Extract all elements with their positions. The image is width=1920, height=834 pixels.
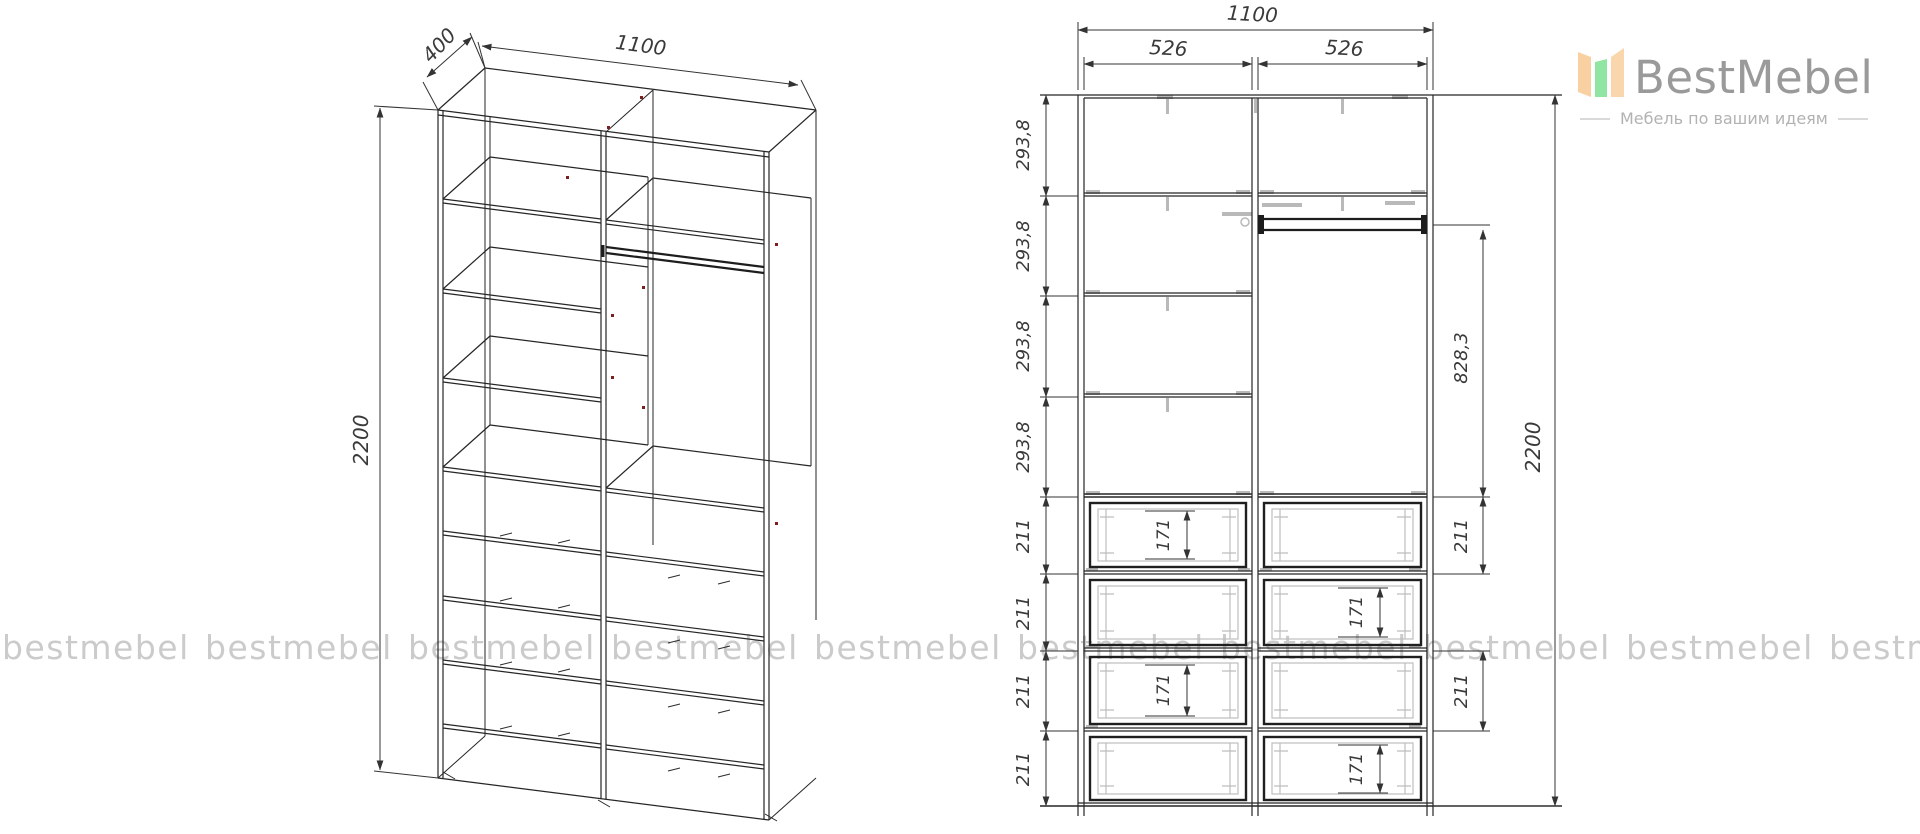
hanging-space-label: 828,3 [1451, 332, 1472, 384]
right-drawer-height-label: 211 [1451, 519, 1472, 553]
drawer-front-label: 171 [1154, 674, 1174, 706]
section-height-label: 293,8 [1013, 220, 1034, 272]
drawer-front [1264, 737, 1421, 800]
iso-hanging-rod [603, 245, 764, 273]
front-gray-fittings [1086, 95, 1425, 728]
section-height-label: 293,8 [1013, 421, 1034, 473]
drawing-canvas: bestmebel bestmebel bestmebel bestmebel … [0, 0, 1920, 834]
drawer-front-label: 171 [1154, 519, 1174, 551]
right-drawer-height-label: 211 [1451, 674, 1472, 708]
iso-dimensions [374, 33, 816, 778]
section-height-label: 293,8 [1013, 119, 1034, 171]
front-hanging-rod [1258, 215, 1427, 234]
brand-logo-icon [1578, 38, 1624, 100]
front-view: 1100 526 526 293,8 293,8 293,8 293,8 211… [1013, 1, 1562, 816]
total-width-label: 1100 [1226, 1, 1278, 28]
front-dimensions [1040, 22, 1562, 806]
brand-logo[interactable]: BestMebel Мебель по вашим идеям [1578, 38, 1890, 128]
drawer-height-label: 211 [1013, 674, 1034, 708]
drawer-front [1264, 580, 1421, 645]
drawer-front-label: 171 [1347, 753, 1367, 785]
section-height-label: 293,8 [1013, 320, 1034, 372]
drawer-height-label: 211 [1013, 519, 1034, 553]
drawer-front-label: 171 [1347, 596, 1367, 628]
right-column-width-label: 526 [1325, 35, 1364, 61]
tagline-rule-right [1838, 118, 1868, 120]
drawer-front [1090, 580, 1246, 645]
iso-view: 2200 1100 400 [349, 23, 816, 821]
iso-height-label: 2200 [349, 415, 373, 466]
drawer-height-label: 211 [1013, 596, 1034, 630]
brand-name: BestMebel [1634, 55, 1873, 100]
left-column-width-label: 526 [1149, 35, 1188, 61]
iso-cabinet-lines [438, 68, 816, 821]
drawer-front [1264, 657, 1421, 724]
drawer-height-label: 211 [1013, 752, 1034, 786]
drawer-front [1090, 737, 1246, 800]
iso-drawer-marks [500, 533, 730, 777]
brand-tagline: Мебель по вашим идеям [1620, 109, 1828, 128]
iso-width-label: 1100 [614, 30, 668, 60]
drawer-front [1264, 503, 1421, 567]
iso-depth-label: 400 [417, 23, 461, 67]
iso-red-markers [566, 96, 778, 525]
total-height-label: 2200 [1521, 422, 1545, 473]
tagline-rule-left [1580, 118, 1610, 120]
iso-dimension-labels: 2200 1100 400 [349, 23, 668, 465]
